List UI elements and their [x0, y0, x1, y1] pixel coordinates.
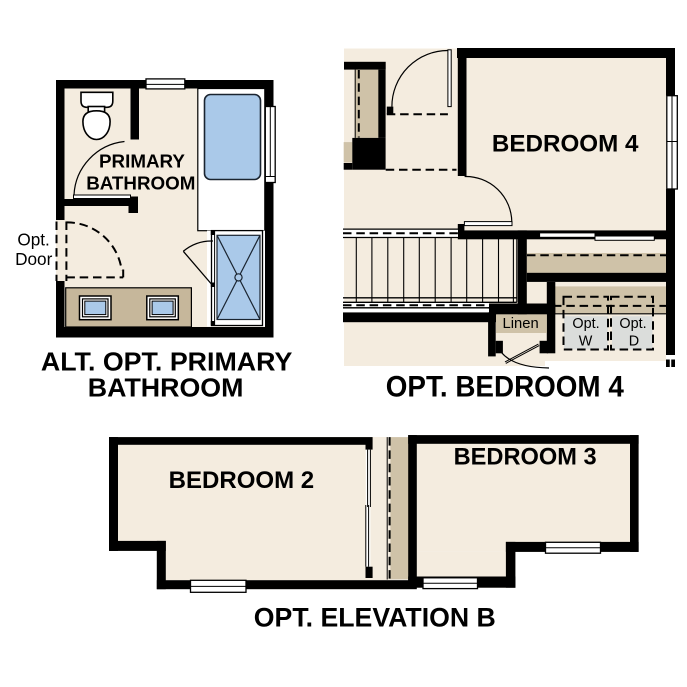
svg-text:D: D	[629, 333, 639, 349]
svg-text:BEDROOM 4: BEDROOM 4	[492, 131, 639, 158]
svg-text:OPT. ELEVATION B: OPT. ELEVATION B	[254, 603, 496, 633]
svg-text:Door: Door	[15, 249, 53, 269]
svg-text:BATHROOM: BATHROOM	[88, 373, 244, 403]
svg-text:Linen: Linen	[502, 316, 538, 332]
svg-text:PRIMARY: PRIMARY	[99, 150, 185, 171]
svg-text:W: W	[579, 333, 593, 349]
svg-text:BEDROOM 2: BEDROOM 2	[169, 467, 315, 494]
svg-text:Opt.: Opt.	[17, 230, 49, 250]
svg-text:OPT. BEDROOM 4: OPT. BEDROOM 4	[386, 371, 625, 404]
svg-text:Opt.: Opt.	[619, 316, 646, 332]
svg-text:BATHROOM: BATHROOM	[86, 173, 195, 194]
svg-text:Opt.: Opt.	[572, 316, 599, 332]
svg-text:BEDROOM 3: BEDROOM 3	[454, 443, 597, 470]
